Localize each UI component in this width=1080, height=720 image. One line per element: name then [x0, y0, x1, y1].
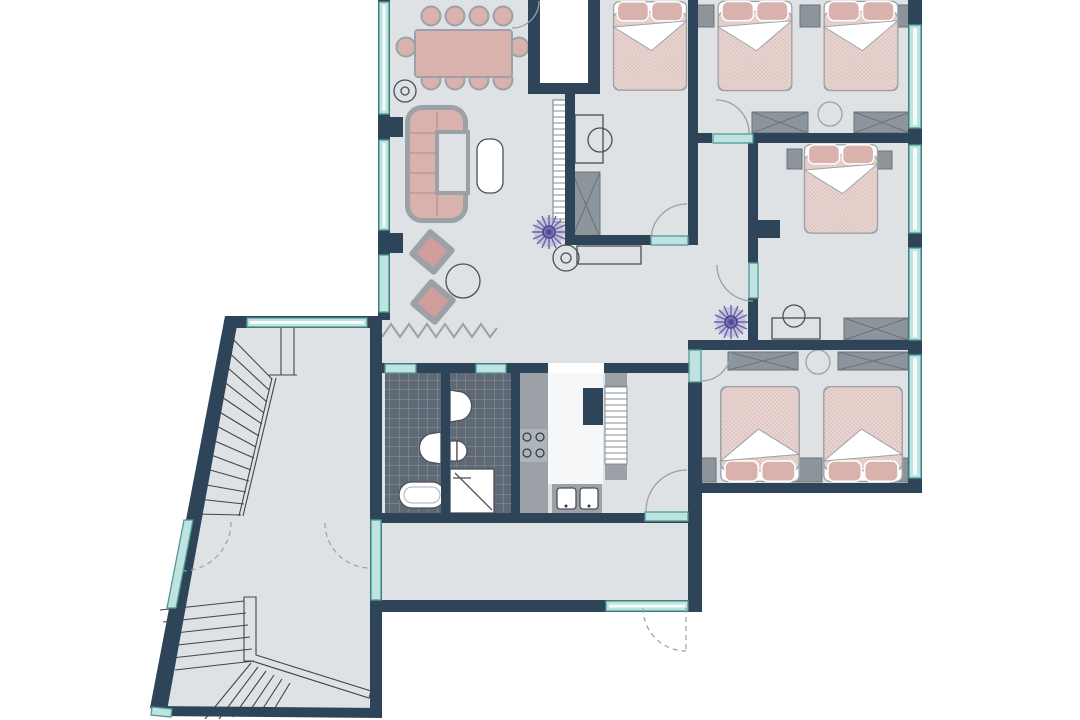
bathtub — [399, 482, 445, 508]
wardrobe — [572, 172, 600, 238]
entry-door-arc — [643, 608, 686, 651]
double-bed — [805, 145, 878, 233]
wardrobe — [838, 352, 908, 370]
double-bed — [614, 2, 687, 90]
coffee-table — [477, 139, 503, 193]
double-bed — [824, 2, 898, 91]
window — [476, 364, 506, 373]
window — [371, 520, 381, 600]
nightstand — [800, 5, 820, 27]
window — [379, 255, 389, 312]
shower — [450, 469, 494, 513]
floor-plan-page: apartment-floor-plan — [0, 0, 1080, 720]
shaft-void — [540, 0, 588, 83]
door-threshold — [749, 263, 758, 298]
door-threshold — [651, 236, 688, 245]
dining-table — [415, 30, 512, 77]
double-bed — [824, 387, 902, 482]
stove — [519, 429, 547, 462]
wardrobe — [728, 352, 798, 370]
corridor-floor — [378, 520, 690, 605]
toilet — [450, 441, 467, 461]
door-threshold — [713, 134, 753, 143]
floor-plan: apartment-floor-plan — [0, 0, 1080, 720]
double-sink — [552, 484, 602, 513]
corner-sofa — [405, 105, 468, 223]
plant-icon — [532, 215, 566, 249]
window — [385, 364, 416, 373]
door-threshold — [689, 350, 701, 382]
double-bed — [721, 387, 799, 482]
wardrobe — [844, 318, 908, 340]
pass-through — [548, 363, 604, 373]
door-threshold — [645, 512, 688, 521]
tv-sideboard — [553, 100, 566, 222]
radiator — [605, 370, 627, 480]
window — [151, 707, 172, 717]
wardrobe — [752, 112, 808, 133]
double-bed — [718, 2, 792, 91]
nightstand — [787, 149, 802, 169]
plant-icon — [714, 305, 748, 339]
wardrobe — [854, 112, 910, 133]
